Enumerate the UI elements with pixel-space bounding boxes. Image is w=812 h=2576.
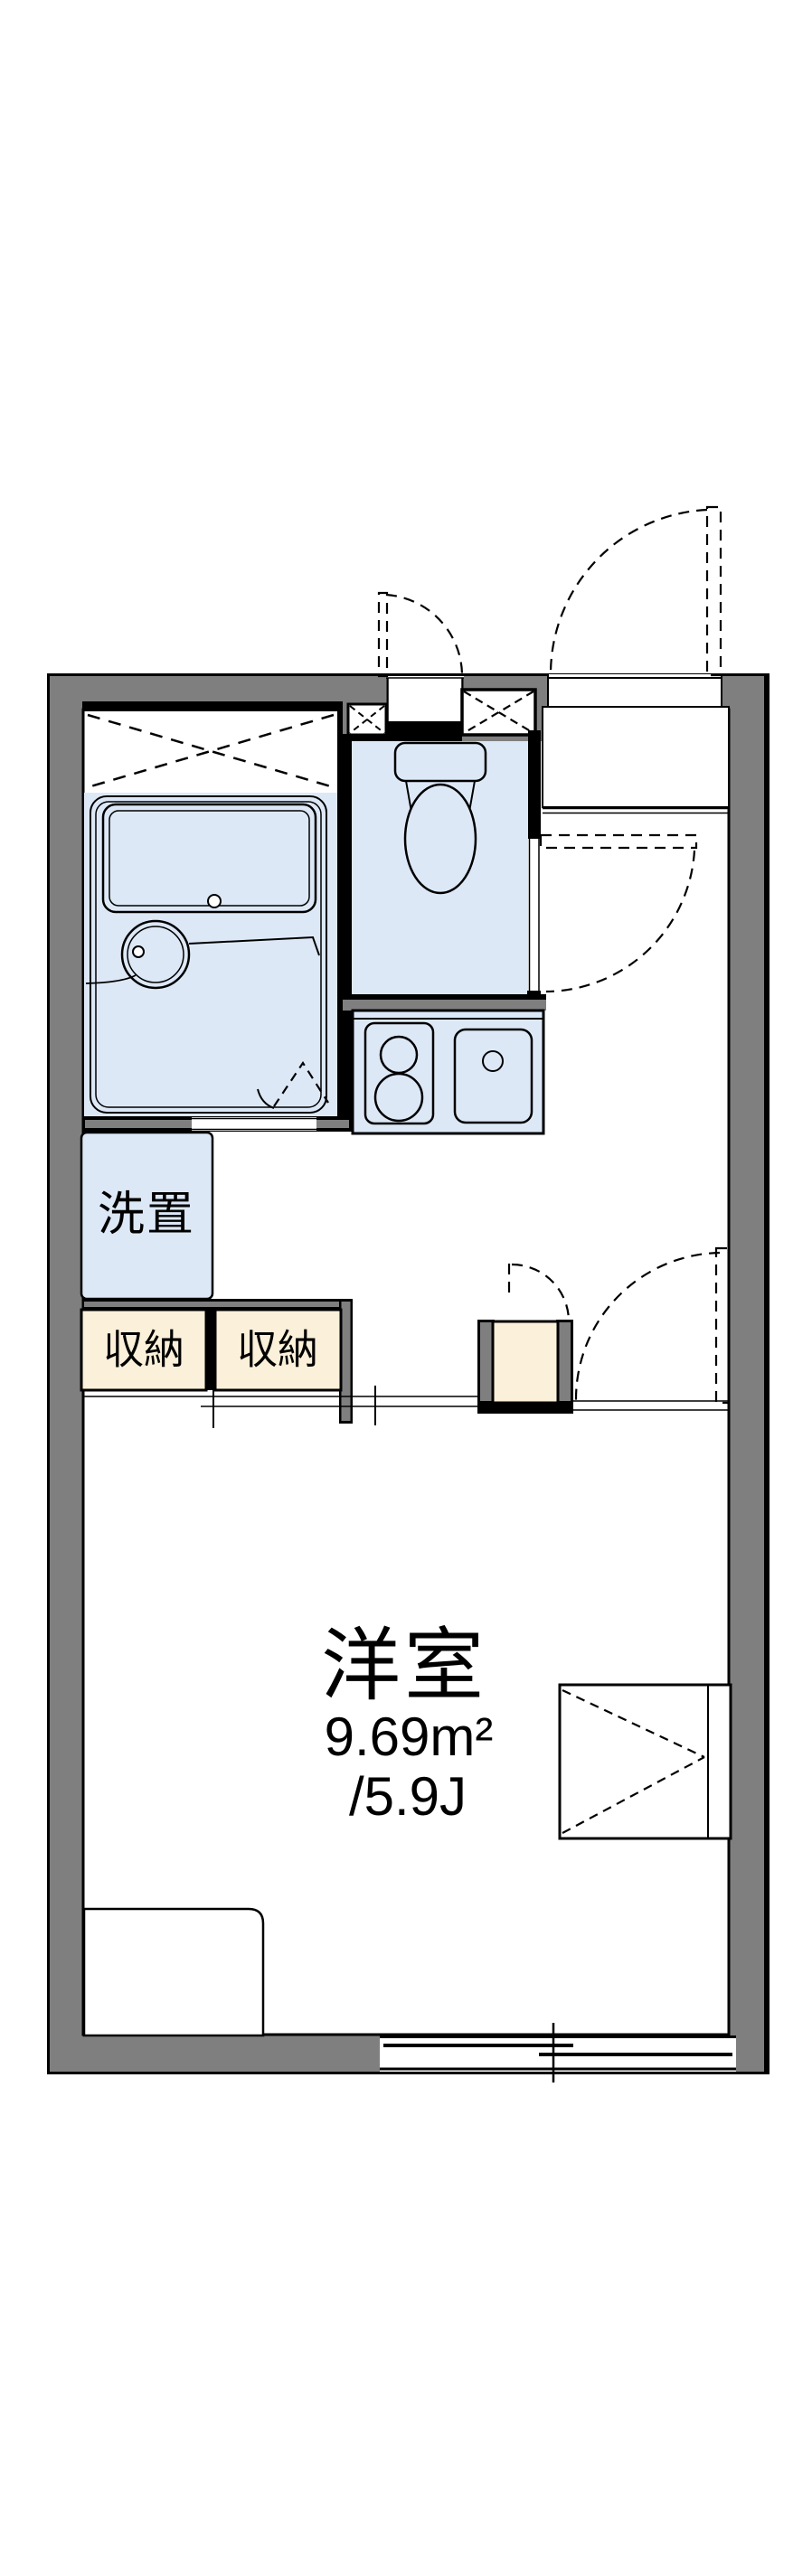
bathtub [103,804,316,912]
room-area-tatami: /5.9J [349,1770,467,1824]
kitchen [343,994,546,1133]
washer-space-label: 洗置 [98,1191,195,1238]
toilet-room [343,676,551,1000]
wash-basin [122,921,189,988]
storage-label-left: 収納 [103,1330,184,1370]
bay-window [560,1685,731,1838]
pipe-space-left [348,704,386,735]
floorplan-drawing [0,0,812,2576]
pipe-space-right [462,690,535,735]
room-label: 洋室 [321,1626,487,1706]
service-door-threshold [386,676,464,734]
storage-label-right: 収納 [237,1330,318,1370]
genkan-step [543,707,729,807]
floorplan-canvas: 洋室 9.69m² /5.9J 洗置 収納 収納 [0,0,812,2576]
service-door [379,593,462,676]
shoe-cabinet [493,1321,558,1403]
room-area-m2: 9.69m² [325,1710,494,1764]
bed [84,1909,263,2035]
genkan-entry [543,674,729,813]
entrance-door [551,507,721,675]
